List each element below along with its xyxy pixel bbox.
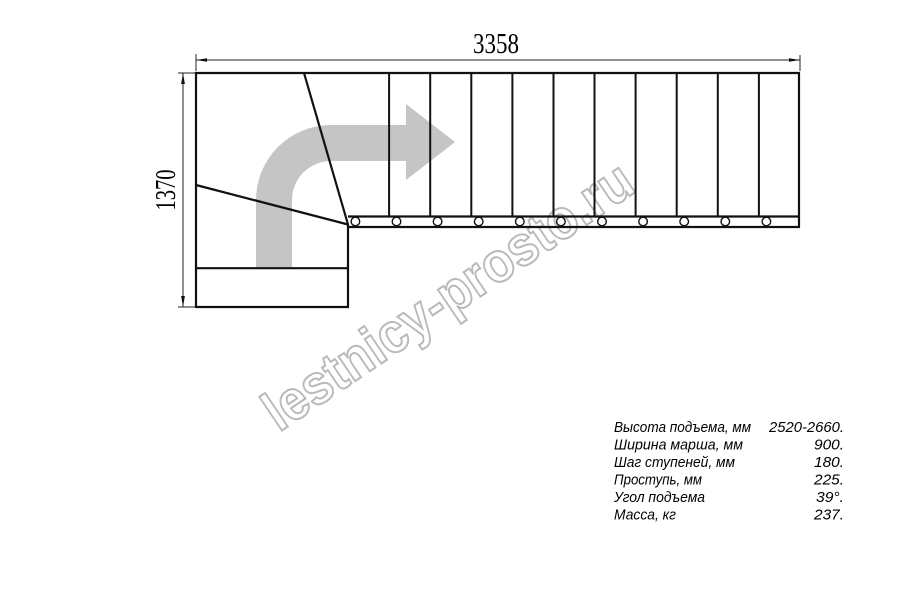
- svg-text:Ширина марша, мм: Ширина марша, мм: [614, 438, 743, 454]
- svg-text:180.: 180.: [814, 455, 844, 471]
- svg-text:39°.: 39°.: [816, 490, 844, 506]
- svg-text:3358: 3358: [473, 28, 519, 60]
- svg-text:2520-2660.: 2520-2660.: [768, 420, 844, 436]
- svg-text:Шаг ступеней, мм: Шаг ступеней, мм: [614, 455, 735, 471]
- svg-text:Проступь, мм: Проступь, мм: [614, 473, 702, 489]
- svg-text:237.: 237.: [813, 508, 844, 524]
- svg-text:Угол подъема: Угол подъема: [613, 490, 705, 506]
- svg-text:1370: 1370: [150, 170, 182, 211]
- svg-text:225.: 225.: [813, 473, 844, 489]
- svg-text:Масса, кг: Масса, кг: [614, 508, 676, 524]
- svg-text:Высота подъема, мм: Высота подъема, мм: [614, 420, 751, 436]
- svg-text:900.: 900.: [814, 438, 844, 454]
